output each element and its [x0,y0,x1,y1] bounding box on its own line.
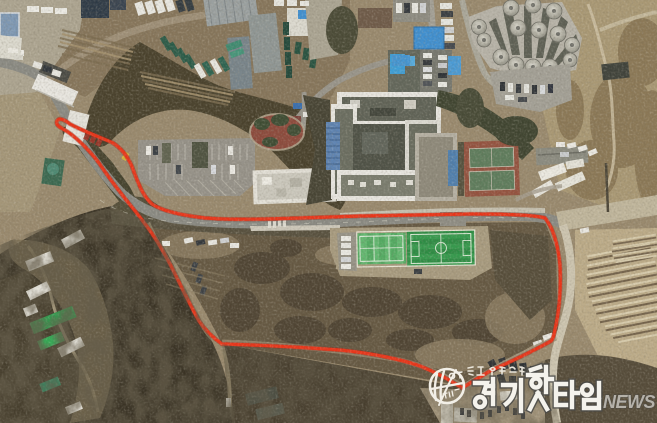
svg-text:NEWS: NEWS [603,392,655,412]
